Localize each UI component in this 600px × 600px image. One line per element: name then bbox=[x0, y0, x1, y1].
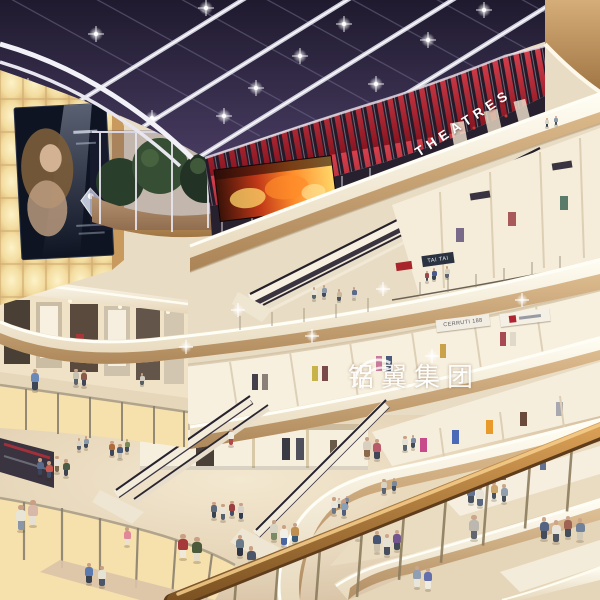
mall-atrium-rendering: THEATRES TAI TAI CERRUTI 188 铝翼集团 bbox=[0, 0, 600, 600]
watermark: 铝翼集团 bbox=[348, 348, 538, 402]
watermark-logo-wing-icon bbox=[348, 348, 394, 398]
foreground-railing bbox=[0, 0, 600, 600]
